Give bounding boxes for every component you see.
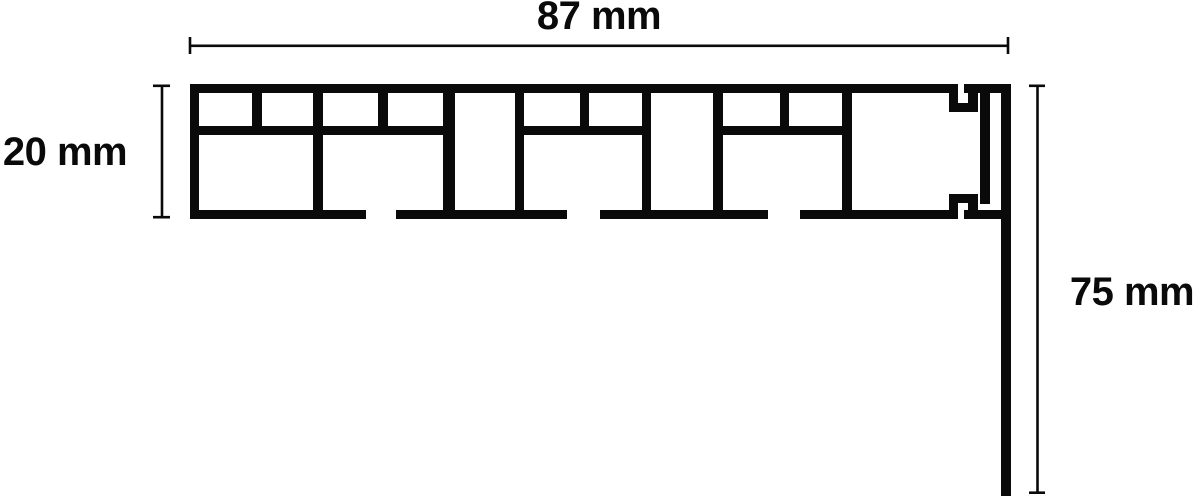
drop-dimension-line — [1029, 85, 1045, 495]
drop-dimension-label: 75 mm — [1062, 270, 1200, 314]
profile-drawing — [0, 0, 1200, 498]
channel-outer-wall — [1001, 93, 1011, 219]
dimension-tick — [153, 85, 170, 88]
channel-top-bar — [964, 84, 1011, 93]
web-full — [842, 84, 852, 219]
web-full — [443, 84, 455, 219]
dimension-tick — [153, 216, 170, 219]
dimension-tick — [1029, 85, 1045, 88]
web-full — [515, 84, 524, 219]
drop-leg — [1001, 219, 1011, 496]
dimension-tick — [189, 37, 192, 54]
bottom-wall-segment — [396, 210, 567, 219]
dimension-tick — [1007, 37, 1010, 54]
width-dimension-line — [189, 37, 1010, 54]
profile-cross-section — [190, 84, 1011, 496]
left-wall — [190, 84, 199, 219]
diagram-canvas: 87 mm 20 mm 75 mm — [0, 0, 1200, 498]
web-top — [580, 84, 589, 135]
channel-bottom-bar — [964, 210, 1011, 219]
height-dimension-label: 20 mm — [0, 130, 130, 174]
bottom-wall-segment — [800, 210, 958, 219]
width-dimension-label: 87 mm — [449, 0, 749, 38]
right-end-channel — [949, 84, 1011, 219]
dimension-tick — [1029, 491, 1045, 494]
channel-hook — [968, 93, 978, 112]
dimension-line — [1036, 86, 1039, 493]
channel-inner-wall — [980, 92, 990, 204]
height-dimension-line — [153, 85, 170, 219]
dimension-line — [161, 86, 164, 217]
web-full — [313, 84, 323, 219]
bottom-wall-segment — [600, 210, 768, 219]
web-top — [252, 84, 262, 135]
web-full — [713, 84, 723, 219]
web-top — [780, 84, 789, 135]
bottom-wall-segment — [190, 210, 366, 219]
web-full — [642, 84, 651, 219]
web-top — [378, 84, 388, 135]
dimension-line — [190, 45, 1008, 48]
